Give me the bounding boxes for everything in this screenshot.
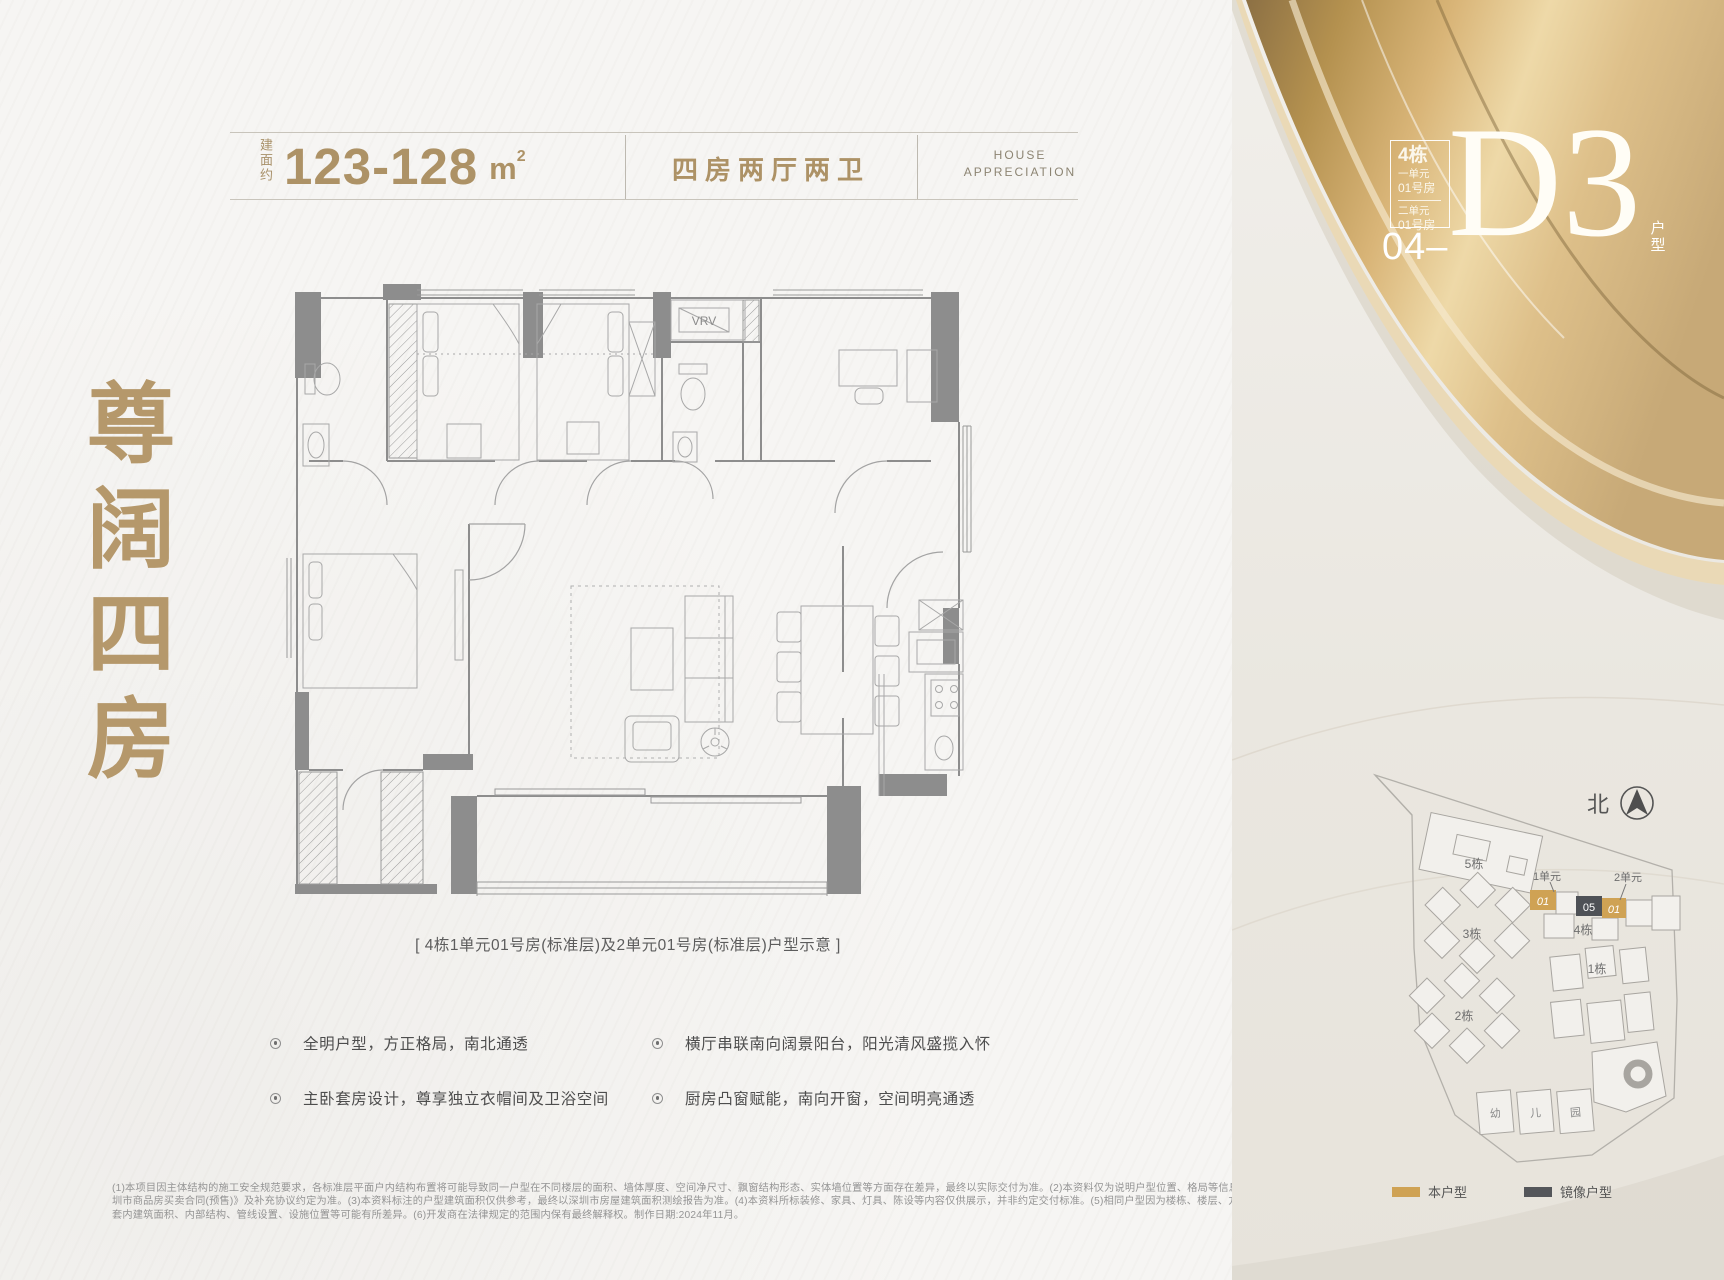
hero-char: 房 bbox=[86, 687, 176, 792]
hero-title: 尊 阔 四 房 bbox=[86, 372, 176, 792]
feature-item: 横厅串联南向阔景阳台，阳光清风盛揽入怀 bbox=[652, 1032, 991, 1054]
svg-text:01: 01 bbox=[1608, 904, 1620, 916]
svg-text:3栋: 3栋 bbox=[1463, 926, 1482, 941]
unit-code-suffix: 户 型 bbox=[1650, 220, 1666, 254]
area-value: 123-128 bbox=[284, 141, 478, 192]
ring-bullet-icon bbox=[270, 1038, 281, 1049]
svg-text:1单元: 1单元 bbox=[1533, 870, 1561, 883]
disclaimer: (1)本项目因主体结构的施工安全规范要求，各标准层平面户内结构布置将可能导致同一… bbox=[112, 1182, 1353, 1222]
legend-self-swatch bbox=[1392, 1187, 1420, 1197]
svg-text:儿: 儿 bbox=[1529, 1106, 1541, 1120]
svg-text:01: 01 bbox=[1537, 896, 1549, 908]
svg-text:2栋: 2栋 bbox=[1455, 1008, 1474, 1023]
header-rule-bottom bbox=[230, 199, 1078, 200]
desk bbox=[839, 350, 897, 386]
feature-item: 主卧套房设计，尊享独立衣帽间及卫浴空间 bbox=[270, 1087, 609, 1109]
ring-bullet-icon bbox=[270, 1093, 281, 1104]
badge-building: 4栋 bbox=[1398, 144, 1449, 168]
area-unit: m2 bbox=[489, 149, 525, 184]
community-building bbox=[1592, 1042, 1666, 1112]
area-block: 建面约 123-128 m2 bbox=[256, 134, 526, 198]
feature-text: 横厅串联南向阔景阳台，阳光清风盛揽入怀 bbox=[685, 1032, 991, 1054]
disclaimer-line: 圳市商品房买卖合同(预售)》及补充协议约定为准。(3)本资料标注的户型建筑面积仅… bbox=[112, 1195, 1353, 1208]
badge-unit1: 一单元 bbox=[1398, 168, 1449, 181]
dining-table bbox=[801, 606, 873, 734]
badge-divider bbox=[1398, 200, 1441, 201]
brand-mark: HOUSE APPRECIATION bbox=[940, 147, 1100, 181]
header-rule-top bbox=[230, 132, 1078, 133]
feature-item: 厨房凸窗赋能，南向开窗，空间明亮通透 bbox=[652, 1087, 975, 1109]
svg-text:园: 园 bbox=[1570, 1106, 1582, 1120]
coffee-table bbox=[631, 628, 673, 690]
legend-self-label: 本户型 bbox=[1428, 1185, 1467, 1200]
feature-text: 主卧套房设计，尊享独立衣帽间及卫浴空间 bbox=[303, 1087, 609, 1109]
unit-code: D3 bbox=[1448, 108, 1641, 258]
svg-text:2单元: 2单元 bbox=[1614, 871, 1642, 884]
legend-mirror-label: 镜像户型 bbox=[1560, 1185, 1612, 1200]
unit-badge: 4栋 一单元 01号房 二单元 01号房 bbox=[1390, 140, 1450, 228]
bed-2 bbox=[537, 304, 629, 460]
master-bed bbox=[303, 554, 417, 688]
building-1 bbox=[1545, 942, 1654, 1047]
right-panel: 4栋 一单元 01号房 二单元 01号房 04– D3 户 型 北 bbox=[1232, 0, 1724, 1280]
feature-text: 全明户型，方正格局，南北通透 bbox=[303, 1032, 528, 1054]
sink-1 bbox=[303, 424, 329, 466]
area-prefix-label: 建面约 bbox=[256, 138, 275, 194]
floorplan-caption: [ 4栋1单元01号房(标准层)及2单元01号房(标准层)户型示意 ] bbox=[283, 933, 973, 955]
feature-item: 全明户型，方正格局，南北通透 bbox=[270, 1032, 528, 1054]
feature-text: 厨房凸窗赋能，南向开窗，空间明亮通透 bbox=[685, 1087, 975, 1109]
header-divider-2 bbox=[917, 135, 918, 199]
badge-unit1-room: 01号房 bbox=[1398, 181, 1449, 195]
siteplan-map: 北 bbox=[1292, 700, 1712, 1220]
area-superscript: 2 bbox=[517, 148, 526, 165]
disclaimer-line: 套内建筑面积、内部结构、管线设置、设施位置等可能有所差异。(6)开发商在法律规定… bbox=[112, 1209, 1353, 1222]
disclaimer-line: (1)本项目因主体结构的施工安全规范要求，各标准层平面户内结构布置将可能导致同一… bbox=[112, 1182, 1353, 1195]
north-compass: 北 bbox=[1587, 787, 1653, 819]
legend-mirror-swatch bbox=[1524, 1187, 1552, 1197]
badge-unit2: 二单元 bbox=[1398, 205, 1449, 218]
svg-text:1栋: 1栋 bbox=[1588, 961, 1607, 976]
hero-char: 尊 bbox=[86, 372, 176, 477]
floorplan-drawing: VRV bbox=[283, 256, 973, 906]
layout-label: 四房两厅两卫 bbox=[625, 150, 917, 187]
toilet-2 bbox=[679, 364, 707, 374]
svg-text:幼: 幼 bbox=[1489, 1107, 1501, 1121]
vrv-label: VRV bbox=[692, 314, 716, 328]
svg-text:5栋: 5栋 bbox=[1465, 856, 1484, 871]
bed-1 bbox=[417, 304, 519, 460]
ring-bullet-icon bbox=[652, 1093, 663, 1104]
ring-bullet-icon bbox=[652, 1038, 663, 1049]
hero-char: 四 bbox=[86, 582, 176, 687]
floorplan-poster: 建面约 123-128 m2 四房两厅两卫 HOUSE APPRECIATION… bbox=[0, 0, 1724, 1280]
highlighted-units: 01 05 01 bbox=[1530, 882, 1626, 918]
svg-text:05: 05 bbox=[1583, 902, 1595, 914]
hero-char: 阔 bbox=[86, 477, 176, 582]
brand-line1: HOUSE bbox=[940, 147, 1100, 164]
brand-line2: APPRECIATION bbox=[940, 164, 1100, 181]
svg-text:北: 北 bbox=[1587, 792, 1609, 817]
rug bbox=[571, 586, 719, 758]
unit-code-prefix: 04– bbox=[1382, 226, 1448, 269]
siteplan-legend: 本户型 镜像户型 bbox=[1392, 1185, 1612, 1200]
svg-text:4栋: 4栋 bbox=[1574, 922, 1593, 937]
sofa bbox=[685, 596, 733, 722]
